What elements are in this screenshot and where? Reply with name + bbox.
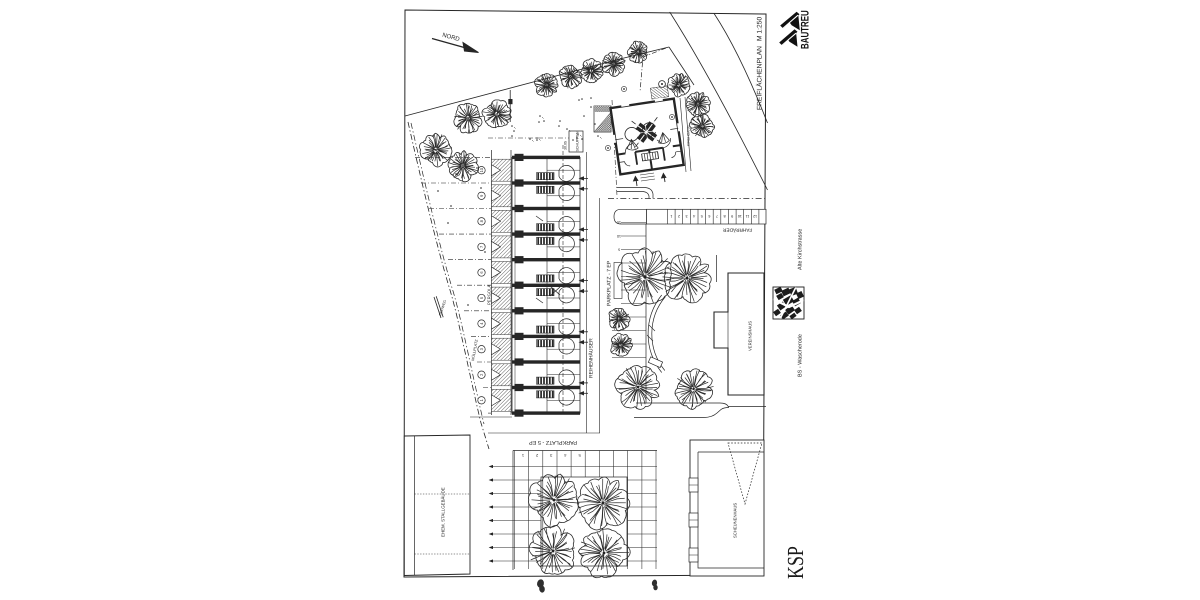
svg-text:15: 15 <box>617 220 621 224</box>
svg-text:30,05: 30,05 <box>564 141 568 150</box>
svg-text:3: 3 <box>686 214 688 218</box>
svg-text:M 1:250: M 1:250 <box>757 17 764 41</box>
svg-text:BS - Wascherode: BS - Wascherode <box>798 334 804 377</box>
svg-text:Alte Kirchstrasse: Alte Kirchstrasse <box>798 229 804 270</box>
svg-text:BAUTREU: BAUTREU <box>800 10 812 49</box>
svg-text:PARKPLATZ - 5 EP: PARKPLATZ - 5 EP <box>529 439 577 445</box>
svg-text:1: 1 <box>670 214 672 218</box>
svg-text:10: 10 <box>479 167 484 172</box>
svg-text:9: 9 <box>731 214 733 218</box>
svg-text:4: 4 <box>693 214 695 218</box>
svg-text:FREIFLÄCHENPLAN: FREIFLÄCHENPLAN <box>756 46 764 110</box>
svg-text:10: 10 <box>617 234 621 238</box>
svg-text:FAHRRÄDER: FAHRRÄDER <box>722 228 752 233</box>
svg-text:6: 6 <box>708 214 710 218</box>
svg-text:2: 2 <box>678 214 680 218</box>
svg-text:EHEM. STALLGEBÄUDE: EHEM. STALLGEBÄUDE <box>441 487 446 537</box>
svg-text:12: 12 <box>753 214 757 218</box>
svg-text:8: 8 <box>724 214 726 218</box>
svg-text:KIRCHGANG: KIRCHGANG <box>687 125 691 146</box>
svg-text:10: 10 <box>738 214 742 218</box>
svg-text:PARKPLATZ - 7 EP: PARKPLATZ - 7 EP <box>607 260 613 306</box>
svg-text:5: 5 <box>618 248 620 252</box>
svg-text:VEREINSHAUS: VEREINSHAUS <box>748 321 753 351</box>
svg-text:KSP: KSP <box>783 546 808 579</box>
svg-text:11: 11 <box>746 214 750 218</box>
svg-text:PERGOLA: PERGOLA <box>487 285 492 305</box>
svg-text:5: 5 <box>701 214 703 218</box>
svg-text:SCHEUNENHAUS: SCHEUNENHAUS <box>733 503 738 538</box>
svg-text:REIHENHÄUSER: REIHENHÄUSER <box>588 338 595 378</box>
svg-text:7: 7 <box>716 214 718 218</box>
